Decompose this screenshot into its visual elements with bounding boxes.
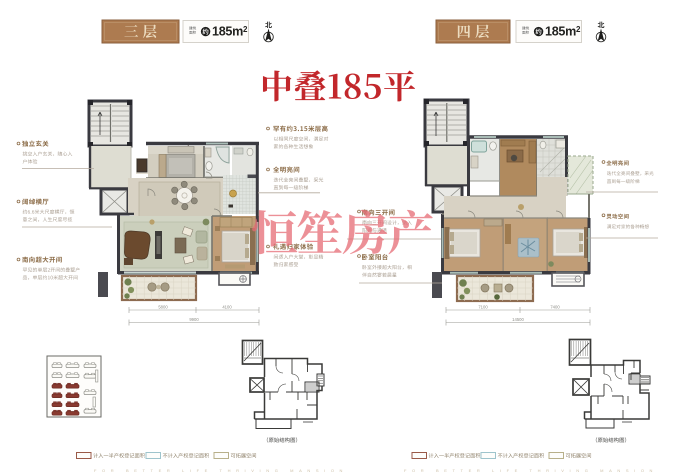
svg-text:7100: 7100 <box>478 305 488 310</box>
svg-text:4100: 4100 <box>222 305 232 310</box>
svg-text:5800: 5800 <box>158 305 168 310</box>
svg-text:FOR BETTER LIFE THRIVING MANSI: FOR BETTER LIFE THRIVING MANSION <box>404 468 658 473</box>
svg-text:185m2: 185m2 <box>212 25 248 39</box>
svg-text:7400: 7400 <box>550 305 560 310</box>
svg-text:14500: 14500 <box>512 317 524 322</box>
svg-text:185m2: 185m2 <box>545 25 581 39</box>
svg-text:FOR BETTER LIFE THRIVING MANSI: FOR BETTER LIFE THRIVING MANSION <box>94 468 348 473</box>
svg-text:9900: 9900 <box>189 317 199 322</box>
